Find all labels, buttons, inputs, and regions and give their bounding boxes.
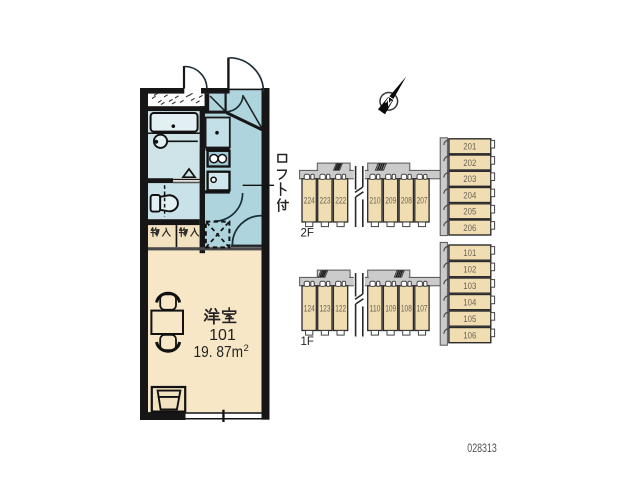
svg-text:209: 209 [385,196,396,206]
svg-text:224: 224 [304,196,315,206]
svg-text:101: 101 [209,327,236,344]
svg-text:124: 124 [304,303,315,313]
svg-text:105: 105 [463,314,476,324]
svg-text:206: 206 [463,223,476,233]
svg-text:101: 101 [463,248,476,258]
svg-text:19. 87m: 19. 87m [194,344,244,361]
svg-text:223: 223 [320,196,331,206]
svg-text:109: 109 [385,303,396,313]
svg-text:103: 103 [463,281,476,291]
svg-text:210: 210 [370,196,381,206]
svg-text:201: 201 [463,142,476,152]
svg-text:1F: 1F [301,336,314,348]
svg-text:208: 208 [401,196,412,206]
svg-text:123: 123 [320,303,331,313]
svg-text:2F: 2F [301,228,314,240]
svg-text:110: 110 [370,303,381,313]
svg-text:107: 107 [417,303,428,313]
svg-text:122: 122 [335,303,346,313]
svg-text:205: 205 [463,207,476,217]
svg-text:028313: 028313 [467,443,497,455]
svg-text:207: 207 [417,196,428,206]
svg-text:222: 222 [335,196,346,206]
svg-text:102: 102 [463,264,476,274]
svg-text:104: 104 [463,297,476,307]
svg-text:108: 108 [401,303,412,313]
svg-text:203: 203 [463,174,476,184]
svg-text:204: 204 [463,190,476,200]
svg-text:202: 202 [463,158,476,168]
svg-text:106: 106 [463,330,476,340]
svg-text:2: 2 [244,343,249,354]
